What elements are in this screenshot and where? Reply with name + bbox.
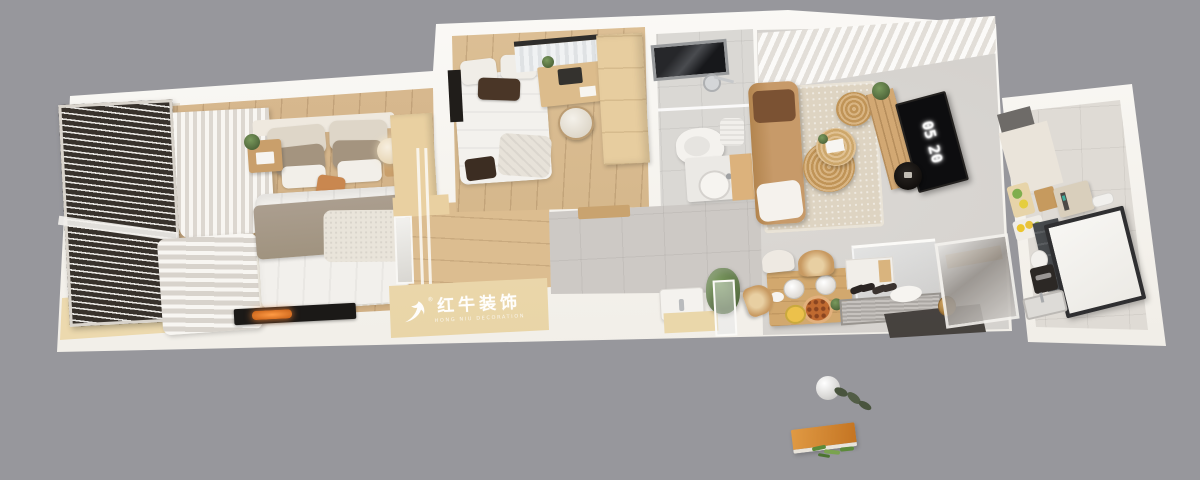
coffee-machine-band: [1035, 272, 1052, 280]
registered-mark: ®: [427, 296, 433, 303]
bathroom-skylight-window: [651, 39, 730, 81]
pendant-lamp-2: [815, 274, 837, 295]
cutting-board-greens: [1011, 188, 1023, 200]
floating-grass-tuft: [808, 442, 860, 460]
corridor-glass-door: [713, 279, 738, 336]
bathroom-wood-cabinet: [729, 153, 754, 200]
tv-clock-hours: 05: [918, 119, 940, 141]
sofa-dark-throw: [752, 89, 796, 124]
grass-blade-4: [818, 453, 830, 458]
fruit-bowl: [784, 304, 806, 324]
bull-logo-icon: ®: [401, 298, 428, 325]
watermark-title-cn: 红牛装饰: [437, 294, 522, 315]
bedroom2-side-window: [448, 70, 464, 123]
desk-monitor: [557, 67, 583, 85]
sink-faucet: [1039, 292, 1044, 302]
laundry-basket: [720, 118, 744, 146]
nightstand-book: [256, 151, 275, 164]
speaker-label-dot: [904, 172, 912, 178]
toilet-seat: [683, 135, 710, 157]
apartment-3d-floorplan-render: ® 红牛装饰 HONG NIU DECORATION: [0, 0, 1200, 480]
pendant-lamp-1: [783, 278, 805, 299]
nightstand-plant: [244, 134, 260, 150]
bed2-fold-throw: [497, 133, 552, 179]
cutting-board-lemon: [1018, 198, 1029, 209]
bedroom2-wardrobe: [596, 33, 650, 166]
coffee-table-sprig: [818, 134, 828, 144]
bed2-brown-pillow: [478, 77, 521, 100]
grass-blade-3: [840, 446, 854, 451]
sofa-white-throw: [756, 179, 805, 222]
desk-paper: [579, 86, 596, 98]
coffee-table-book: [825, 139, 845, 154]
tv-clock-minutes: 20: [924, 143, 946, 165]
shoe-cabinet-wood-stripe: [878, 260, 892, 283]
bed2-dark-throw: [464, 156, 497, 182]
coffee-table-small: [816, 128, 856, 166]
corridor-basin-cabinet: [664, 311, 719, 334]
dining-chair-wood-1: [797, 249, 835, 277]
sofa: [748, 81, 807, 226]
branch-leaf-3: [857, 399, 873, 412]
kitchen-sliding-glass-door: [934, 233, 1019, 328]
desk-stool: [558, 106, 594, 140]
pizza-plate: [802, 295, 834, 325]
desk-plant: [542, 56, 554, 68]
basin-faucet: [679, 299, 685, 311]
floating-branch: [832, 382, 874, 416]
round-speaker: [894, 162, 922, 190]
console-plant: [872, 82, 890, 100]
tv-strip-warm-glow: [252, 309, 292, 320]
hall-standing-mirror: [394, 216, 414, 285]
